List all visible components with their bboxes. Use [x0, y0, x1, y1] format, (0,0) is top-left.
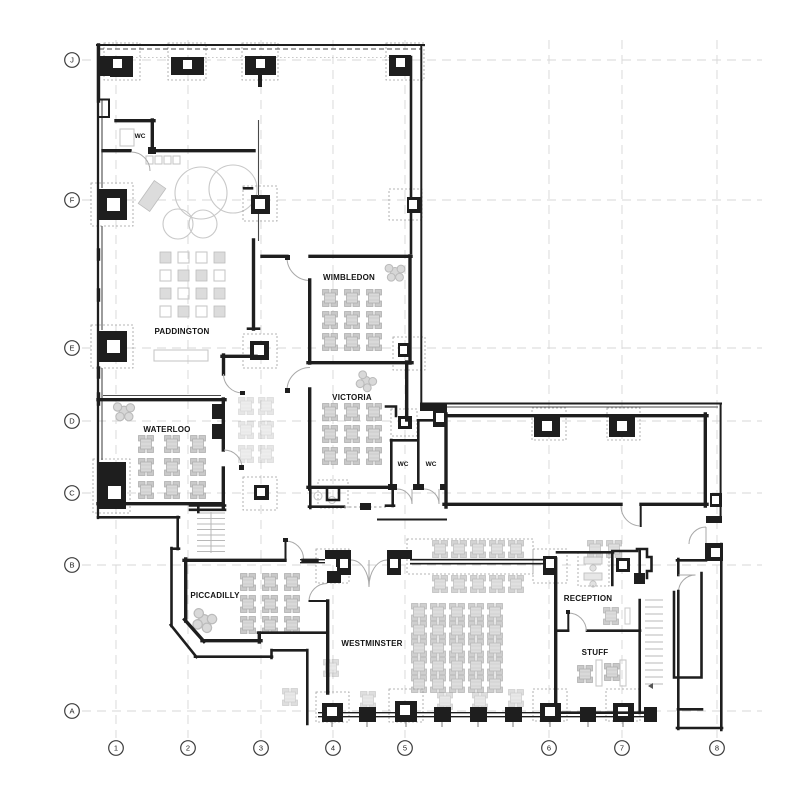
svg-text:6: 6	[547, 744, 551, 753]
svg-text:B: B	[69, 561, 74, 570]
svg-text:3: 3	[259, 744, 263, 753]
svg-text:PADDINGTON: PADDINGTON	[154, 327, 209, 336]
svg-text:8: 8	[715, 744, 719, 753]
svg-text:A: A	[69, 707, 74, 716]
svg-text:F: F	[70, 196, 75, 205]
svg-text:C: C	[69, 489, 75, 498]
svg-text:WESTMINSTER: WESTMINSTER	[341, 639, 402, 648]
svg-text:WC: WC	[135, 133, 146, 140]
svg-text:WIMBLEDON: WIMBLEDON	[323, 273, 375, 282]
svg-text:WC: WC	[426, 461, 437, 468]
svg-text:E: E	[69, 344, 74, 353]
svg-text:1: 1	[114, 744, 118, 753]
svg-text:WC: WC	[398, 461, 409, 468]
svg-text:5: 5	[403, 744, 407, 753]
svg-text:RECEPTION: RECEPTION	[564, 594, 612, 603]
svg-text:7: 7	[620, 744, 624, 753]
svg-text:WATERLOO: WATERLOO	[143, 425, 190, 434]
svg-text:4: 4	[331, 744, 335, 753]
svg-text:VICTORIA: VICTORIA	[332, 393, 372, 402]
svg-text:PICCADILLY: PICCADILLY	[190, 591, 240, 600]
svg-text:STUFF: STUFF	[582, 648, 609, 657]
svg-text:J: J	[70, 56, 74, 65]
svg-text:D: D	[69, 417, 75, 426]
svg-text:2: 2	[186, 744, 190, 753]
